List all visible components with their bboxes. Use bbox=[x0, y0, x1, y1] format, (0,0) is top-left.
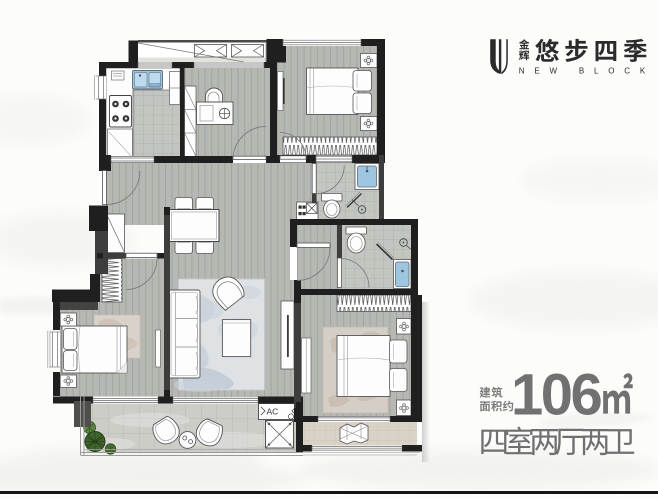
svg-text:NEW BLOCK: NEW BLOCK bbox=[519, 66, 655, 75]
svg-text:106: 106 bbox=[511, 363, 602, 428]
svg-text:AC: AC bbox=[267, 407, 279, 417]
